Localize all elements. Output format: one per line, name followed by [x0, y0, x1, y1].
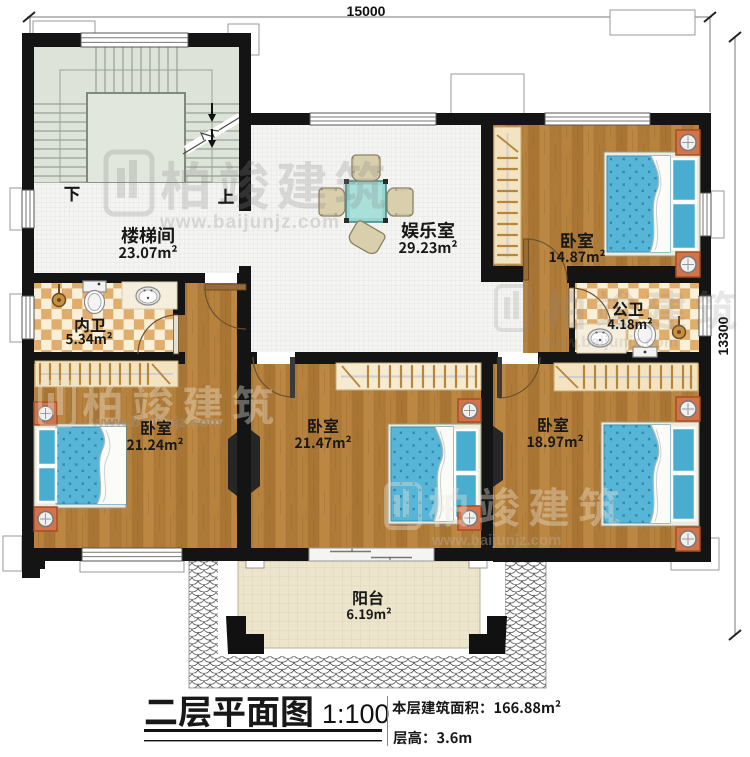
svg-text:www.baijunjz.com: www.baijunjz.com: [539, 334, 678, 351]
svg-text:www.baijunjz.com: www.baijunjz.com: [159, 212, 340, 233]
svg-text:15000: 15000: [347, 3, 386, 19]
svg-text:www.baijunjz.com: www.baijunjz.com: [91, 414, 221, 431]
svg-text:1:100: 1:100: [322, 699, 390, 729]
svg-text:www.baijunjz.com: www.baijunjz.com: [431, 532, 561, 549]
